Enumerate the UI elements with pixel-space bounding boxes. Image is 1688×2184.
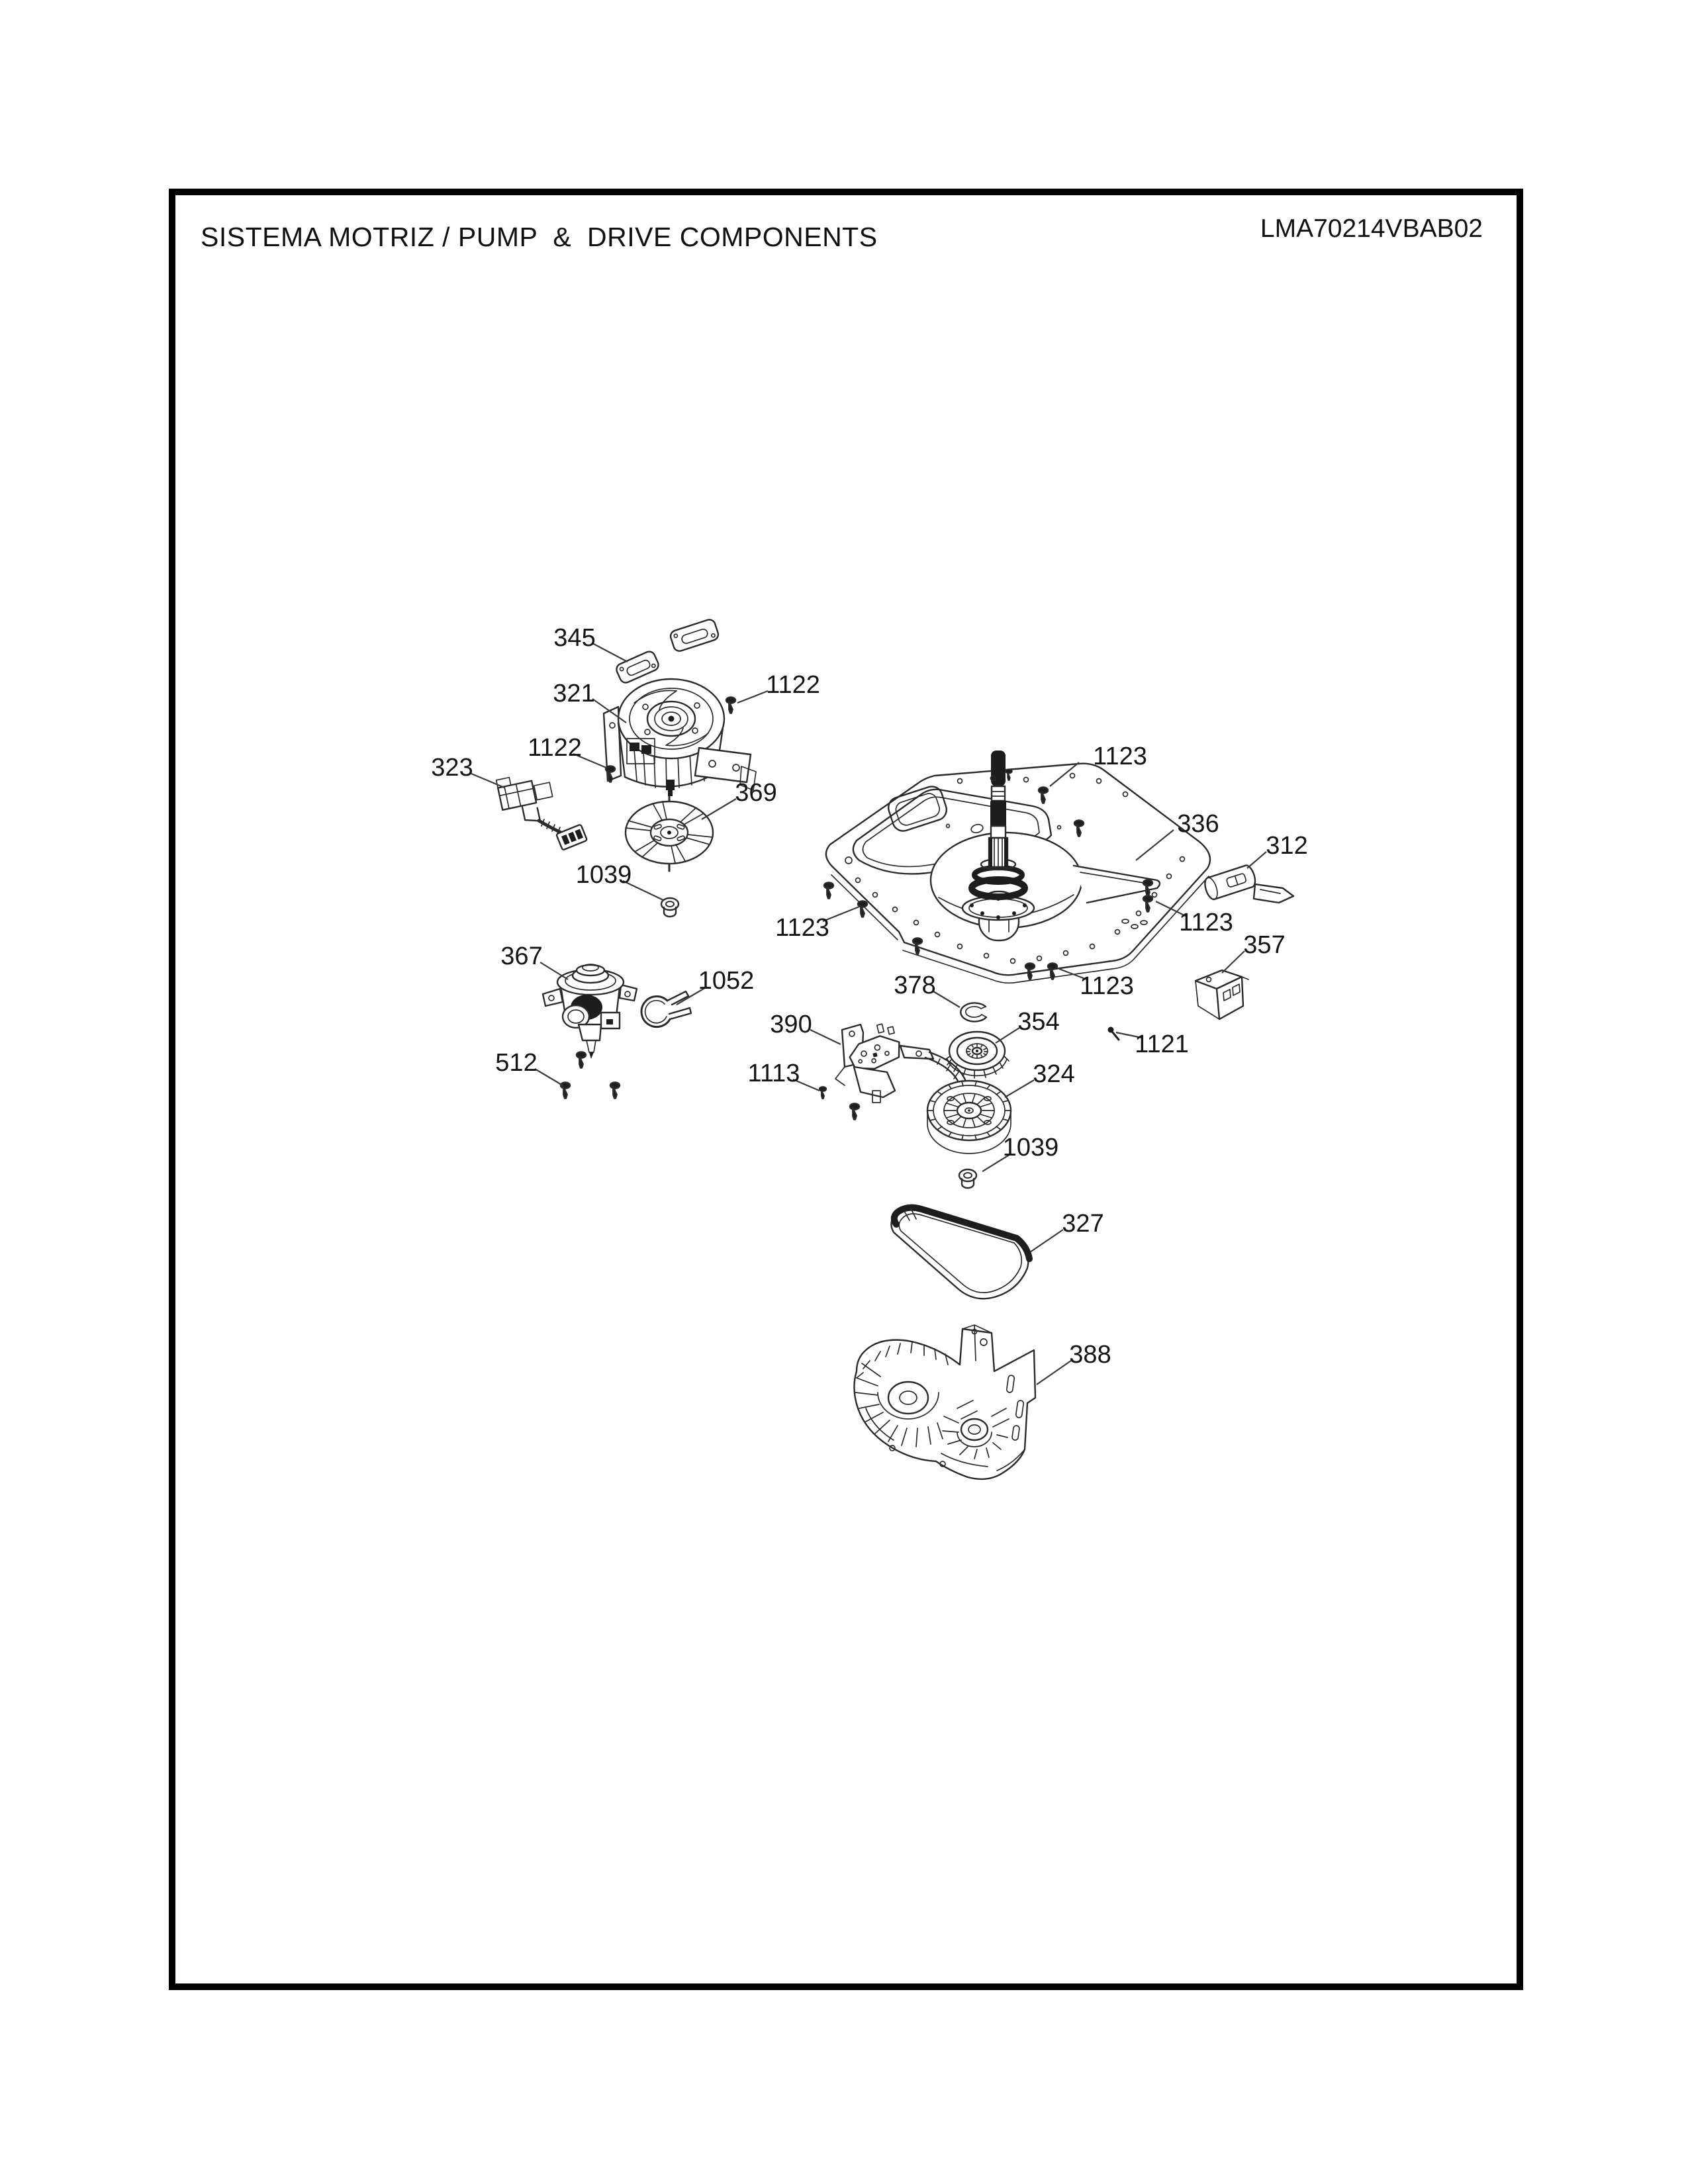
- callout-leader-369: [702, 799, 736, 819]
- callout-leader-323: [471, 774, 504, 788]
- pulley-drawing: [927, 1081, 1011, 1154]
- rotor-fan-drawing: [626, 797, 713, 871]
- part-number-367: 367: [500, 942, 542, 970]
- part-number-1039: 1039: [576, 861, 632, 889]
- mount-pad-drawing: [615, 618, 720, 684]
- transmission-plate-drawing: [826, 751, 1210, 983]
- callout-leader-378: [933, 991, 960, 1007]
- callout-leader-357: [1222, 951, 1244, 973]
- nut-icon: [661, 898, 679, 917]
- part-number-390: 390: [770, 1011, 812, 1038]
- part-number-378: 378: [894, 972, 935, 999]
- screw-icon: [850, 1103, 859, 1119]
- part-number-312: 312: [1266, 832, 1307, 860]
- belt-drawing: [891, 1207, 1029, 1298]
- callout-leader-367: [540, 962, 568, 979]
- part-number-1122: 1122: [528, 734, 582, 762]
- callout-leader-390: [810, 1030, 841, 1044]
- part-number-1123: 1123: [1080, 972, 1134, 1000]
- nut-icon: [959, 1169, 976, 1188]
- callout-leader-1122: [737, 691, 768, 703]
- part-number-321: 321: [553, 680, 594, 707]
- part-number-1123: 1123: [775, 914, 829, 942]
- clutch-gear-drawing: [945, 1032, 1009, 1078]
- pump-drawing: [543, 964, 637, 1059]
- part-number-327: 327: [1062, 1210, 1103, 1238]
- callout-leader-312: [1247, 852, 1266, 868]
- document-code: LMA70214VBAB02: [1260, 214, 1483, 243]
- part-number-1122: 1122: [766, 671, 820, 699]
- part-number-336: 336: [1177, 810, 1219, 838]
- page-border: [172, 192, 1520, 1987]
- callout-layer: 3453211122112232336910391123336312112311…: [431, 624, 1307, 1385]
- screw-icon: [577, 1052, 586, 1068]
- part-number-354: 354: [1017, 1008, 1059, 1036]
- harness-drawing: [496, 770, 587, 850]
- part-number-1121: 1121: [1135, 1030, 1189, 1058]
- belt-guard-drawing: [854, 1325, 1035, 1479]
- part-number-345: 345: [553, 624, 595, 652]
- part-number-1039: 1039: [1003, 1134, 1059, 1161]
- motor-drawing: [604, 679, 756, 796]
- callout-leader-388: [1037, 1361, 1071, 1385]
- screw-icon: [820, 1087, 827, 1099]
- callout-leader-327: [1030, 1230, 1063, 1252]
- part-number-369: 369: [735, 779, 776, 807]
- page-title: SISTEMA MOTRIZ / PUMP & DRIVE COMPONENTS: [201, 222, 878, 252]
- part-number-1123: 1123: [1093, 743, 1147, 770]
- part-number-1052: 1052: [698, 967, 755, 995]
- screw-icon: [610, 1082, 620, 1098]
- callout-leader-345: [592, 643, 628, 662]
- part-number-324: 324: [1033, 1060, 1074, 1088]
- part-number-388: 388: [1069, 1341, 1111, 1369]
- roller-drawing: [1203, 864, 1293, 903]
- diagram-canvas: SISTEMA MOTRIZ / PUMP & DRIVE COMPONENTS…: [0, 0, 1688, 2184]
- part-number-1113: 1113: [748, 1060, 800, 1087]
- callout-leader-512: [535, 1069, 563, 1085]
- part-number-1123: 1123: [1179, 909, 1233, 936]
- part-number-323: 323: [431, 754, 473, 782]
- part-number-357: 357: [1243, 931, 1285, 959]
- catalog-page: SISTEMA MOTRIZ / PUMP & DRIVE COMPONENTS…: [0, 0, 1688, 2184]
- part-number-512: 512: [495, 1049, 537, 1077]
- bracket-drawing: [1196, 970, 1248, 1019]
- screw-icon: [824, 882, 833, 898]
- ring-drawing: [961, 1003, 986, 1021]
- callout-leader-324: [1005, 1080, 1034, 1097]
- hose-clamp-drawing: [641, 991, 691, 1027]
- callout-leader-354: [996, 1028, 1019, 1043]
- screw-icon: [726, 697, 735, 713]
